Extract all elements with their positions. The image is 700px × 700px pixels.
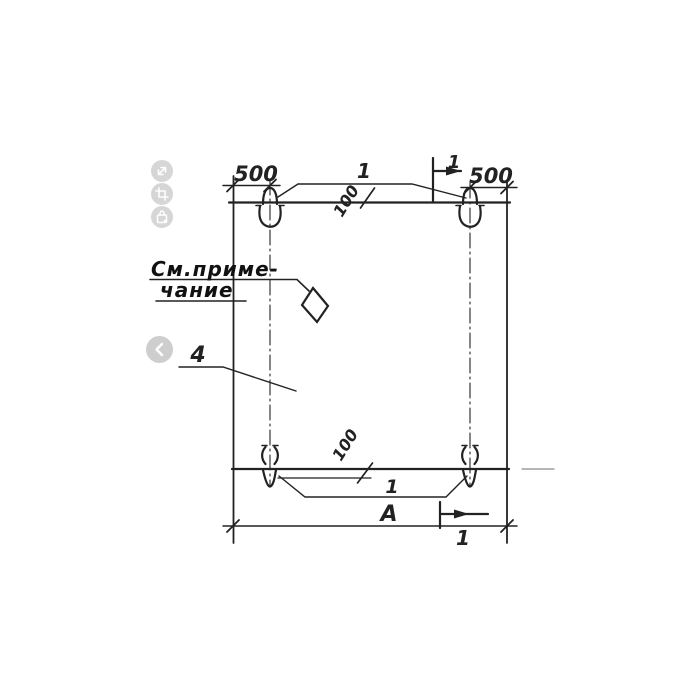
section-mark-bottom-label: 1 — [456, 526, 470, 550]
note-label-line2: чание — [160, 278, 234, 302]
callout-loops-bottom — [279, 476, 467, 497]
panel-outline — [229, 176, 510, 543]
chevron-left-icon — [146, 336, 173, 363]
dim-offset-top — [361, 188, 375, 208]
dim-top-right-label: 500 — [469, 164, 513, 188]
dim-top-left-label: 500 — [234, 162, 278, 186]
technical-drawing: 1 100 500 500 1 — [0, 0, 700, 700]
callout-loops-bottom-label: 1 — [385, 476, 398, 498]
bag-icon — [151, 206, 173, 228]
bag-button[interactable] — [151, 206, 173, 228]
expand-icon — [151, 160, 173, 182]
callout-panel-label: 4 — [189, 343, 205, 368]
image-viewer: 1 100 500 500 1 — [0, 0, 700, 700]
dim-overall — [223, 520, 517, 532]
dim-offset-bottom-label: 100 — [328, 426, 362, 464]
dim-offset-bottom — [278, 463, 373, 483]
centerlines — [270, 180, 470, 487]
prev-image-button[interactable] — [146, 336, 173, 363]
section-mark-top-label: 1 — [448, 152, 461, 173]
dim-offset-top-label: 100 — [329, 182, 363, 220]
crop-button[interactable] — [151, 183, 173, 205]
section-mark-bottom — [440, 502, 488, 528]
callout-panel — [179, 367, 296, 391]
expand-button[interactable] — [151, 160, 173, 182]
crop-icon — [151, 183, 173, 205]
dim-overall-label: А — [378, 502, 397, 527]
callout-loops-top-label: 1 — [357, 159, 371, 183]
